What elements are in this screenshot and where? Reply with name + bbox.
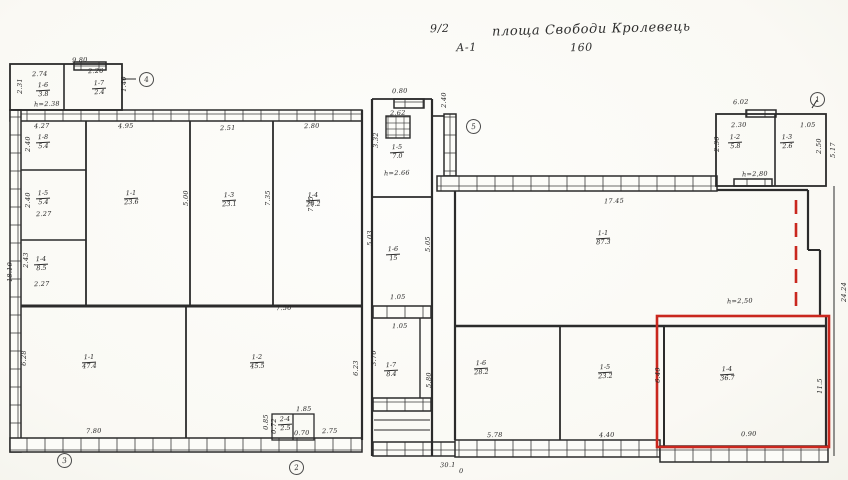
dim-label: 2.40 <box>24 192 32 208</box>
red-highlight-rect <box>657 316 829 447</box>
room-area: 2.5 <box>278 424 293 433</box>
room-area: 23.2 <box>598 372 613 381</box>
dim-label: 2.26 <box>88 67 104 76</box>
floorplan-scan: 9/2 площа Свободи Кролевець А-1 160 4 5 … <box>0 0 848 480</box>
dim-label: 2.30 <box>731 121 747 130</box>
scale-note: 160 <box>570 41 593 55</box>
dim-label: 2.30 <box>713 136 721 152</box>
room-label: 1-55.4 <box>36 190 51 207</box>
dim-label: 2.27 <box>36 210 52 219</box>
dim-label: 30.1 <box>440 461 456 470</box>
room-label: 1-323.1 <box>222 192 237 209</box>
dim-label: 5.80 <box>425 372 433 388</box>
red-highlight <box>657 200 829 447</box>
dim-label: 5.17 <box>829 142 837 158</box>
dim-label: 0.90 <box>741 430 757 439</box>
room-area: 5.4 <box>36 142 51 151</box>
dim-label: 2.80 <box>304 122 320 131</box>
room-area: 47.4 <box>82 362 97 371</box>
dim-label: 1.40 <box>120 76 128 92</box>
dim-label: 2.74 <box>32 70 48 79</box>
dim-label: 0 <box>459 467 464 475</box>
dim-label: 0.80 <box>392 87 408 96</box>
dim-label: 0.70 <box>294 429 310 438</box>
dim-label: 6.40 <box>654 367 662 383</box>
dim-label: 6.23 <box>352 360 360 376</box>
dim-label: 5.78 <box>487 431 503 440</box>
dim-label: 5.00 <box>182 190 190 206</box>
room-area: 87.3 <box>596 238 611 247</box>
dim-label: 6.28 <box>20 350 28 366</box>
dim-label: 11.5 <box>816 378 824 394</box>
room-area: 8.4 <box>384 370 399 379</box>
dim-label: 9.80 <box>72 56 88 65</box>
dim-label: h=2.66 <box>384 169 410 178</box>
room-area: 7.0 <box>390 152 405 161</box>
dim-label: 2.31 <box>16 78 24 94</box>
room-label: 1-615 <box>386 246 401 263</box>
room-label: 1-48.5 <box>34 256 49 273</box>
room-area: 36.7 <box>720 374 735 383</box>
room-label: 1-436.7 <box>720 366 735 383</box>
dim-label: 1.85 <box>296 405 312 414</box>
room-area: 2.4 <box>92 88 107 97</box>
dim-label: h=2,50 <box>727 297 753 306</box>
dim-label: 1.05 <box>392 322 408 331</box>
room-label: 1-245.5 <box>250 354 265 371</box>
dim-label: 24.24 <box>840 282 848 302</box>
room-area: 8.5 <box>34 264 49 273</box>
room-label: 2-42.5 <box>278 416 293 433</box>
room-area: 2.6 <box>780 142 795 151</box>
dim-label: 4.95 <box>118 122 134 131</box>
drawing-number: А-1 <box>456 41 477 55</box>
dim-label: 2.27 <box>34 280 50 289</box>
room-area: 3.8 <box>36 90 51 99</box>
dim-label: 5.03 <box>366 230 374 246</box>
room-area: 5.4 <box>36 198 51 207</box>
dim-label: 7.35 <box>264 190 272 206</box>
dim-label: 7.80 <box>86 427 102 436</box>
room-area: 23.1 <box>222 200 237 209</box>
dim-label: 7.35 <box>307 196 315 212</box>
room-label: 1-78.4 <box>384 362 399 379</box>
room-label: 1-187.3 <box>596 230 611 247</box>
dim-label: 0.85 <box>262 414 270 430</box>
room-label: 1-63.8 <box>36 82 51 99</box>
room-label: 1-123.6 <box>124 190 139 207</box>
dim-label: 7.56 <box>276 304 292 313</box>
dim-label: 2.62 <box>390 109 406 118</box>
room-area: 23.6 <box>124 198 139 207</box>
room-area: 45.5 <box>250 362 265 371</box>
dim-label: 2.51 <box>220 124 236 133</box>
dim-label: 4.40 <box>599 431 615 440</box>
dim-label: 2.75 <box>322 427 338 436</box>
dim-label: 2.43 <box>22 252 30 268</box>
room-area: 5.8 <box>728 142 743 151</box>
dim-label: 2.40 <box>440 92 448 108</box>
room-label: 1-25.8 <box>728 134 743 151</box>
dim-label: h=2.38 <box>34 100 60 109</box>
room-label: 1-147.4 <box>82 354 97 371</box>
room-area: 28.2 <box>474 368 489 377</box>
room-label: 1-57.0 <box>390 144 405 161</box>
dim-label: 18.10 <box>6 262 14 282</box>
dim-label: h=2,80 <box>742 170 768 179</box>
dim-label: 3.32 <box>372 132 380 148</box>
sheet-number: 9/2 <box>430 22 450 36</box>
dim-label: 5.05 <box>424 236 432 252</box>
dim-label: 6.02 <box>733 98 749 107</box>
dim-label: 17.45 <box>604 197 624 206</box>
room-label: 1-628.2 <box>474 360 489 377</box>
dim-label: 4.27 <box>34 122 50 131</box>
room-label: 1-85.4 <box>36 134 51 151</box>
dim-label: 0.72 <box>270 418 278 434</box>
room-label: 1-523.2 <box>598 364 613 381</box>
dim-label: 3.70 <box>370 350 378 366</box>
room-area: 15 <box>386 254 401 263</box>
dim-label: 1.05 <box>390 293 406 302</box>
dim-label: 1.05 <box>800 121 816 130</box>
dim-label: 2.40 <box>24 136 32 152</box>
dim-label: 2.50 <box>815 138 823 154</box>
room-label: 1-72.4 <box>92 80 107 97</box>
room-label: 1-32.6 <box>780 134 795 151</box>
